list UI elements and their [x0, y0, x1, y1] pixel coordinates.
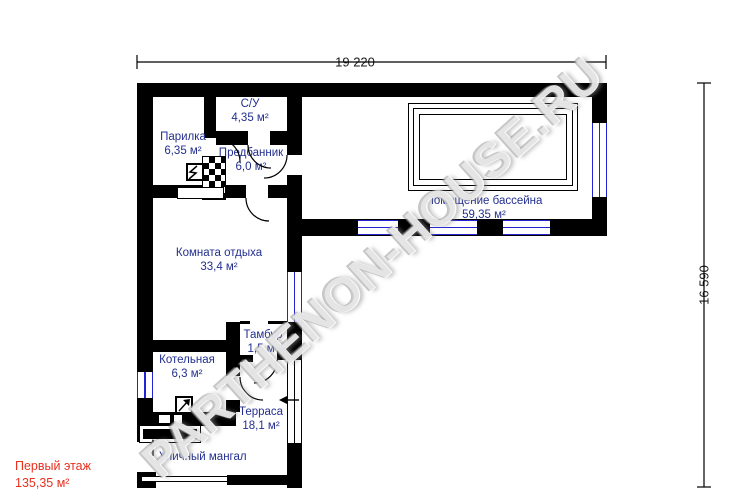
window-lounge-right [287, 272, 302, 322]
door-arc-tambour [254, 360, 277, 383]
floor-plan: Парилка 6,35 м² С/У 4,35 м² Предбанник 6… [0, 0, 750, 500]
room-area: 4,35 м² [231, 111, 268, 125]
room-label-su: С/У 4,35 м² [231, 97, 268, 125]
flue-mark [159, 415, 170, 423]
room-name: Терраса [239, 405, 283, 419]
room-area: 6,0 м² [219, 160, 283, 174]
floor-area: 135,35 м² [15, 475, 91, 492]
wall-top [137, 83, 607, 97]
wall-boiler-top [137, 340, 240, 352]
terrace-pillar-right [287, 443, 302, 488]
room-name: Котельная [159, 353, 215, 367]
terrace-edge-right [287, 360, 302, 443]
pool-basin [419, 114, 567, 180]
street-grill [140, 426, 200, 442]
plan-graphics [0, 0, 750, 500]
wall-pool-right-upper [592, 97, 607, 123]
wall-su-bottom-left [216, 131, 248, 145]
room-name: Тамбур [243, 328, 282, 342]
room-label-kotelnaya: Котельная 6,3 м² [159, 353, 215, 381]
room-area: 1,5 м² [243, 342, 282, 356]
grill-label: Уличный мангал [159, 451, 247, 463]
electric-heater-icon [186, 163, 204, 181]
wall-su-bottom-right [270, 131, 287, 145]
room-label-terrasa: Терраса 18,1 м² [239, 405, 283, 433]
window-pool-right [592, 123, 607, 197]
room-name: Помещение бассейна [426, 194, 543, 208]
room-label-predbannik: Предбанник 6,0 м² [219, 146, 283, 174]
floor-summary: Первый этаж 135,35 м² [15, 458, 91, 492]
door-arc-boiler [240, 377, 263, 400]
boiler-icon [175, 396, 193, 414]
room-name: С/У [231, 97, 268, 111]
dimension-height: 16 590 [696, 259, 713, 311]
flue-mark [174, 415, 182, 423]
room-name: Предбанник [219, 146, 283, 160]
wall-wing-right-1 [287, 97, 302, 155]
stove-bench [177, 187, 224, 199]
room-name: Парилка [160, 130, 206, 144]
room-area: 59,35 м² [426, 208, 543, 222]
wall-boiler-bottom [137, 412, 236, 426]
dimension-width: 19 220 [329, 54, 381, 71]
room-area: 6,3 м² [159, 367, 215, 381]
floor-title: Первый этаж [15, 458, 91, 475]
entry-arrow-head [279, 396, 287, 404]
room-area: 33,4 м² [176, 260, 262, 274]
room-area: 18,1 м² [239, 419, 283, 433]
terrace-step [227, 475, 289, 485]
window-boiler-left [137, 372, 153, 398]
window-pool-bottom-3 [503, 220, 550, 235]
door-arc-predbannik-lounge [246, 198, 269, 221]
room-area: 6,35 м² [160, 144, 206, 158]
room-label-tambur: Тамбур 1,5 м² [243, 328, 282, 356]
swimming-pool [408, 103, 578, 191]
window-pool-bottom-2 [430, 220, 477, 235]
wall-tambour-bottom [240, 355, 253, 362]
room-label-bassein: Помещение бассейна 59,35 м² [426, 194, 543, 222]
room-name: Комната отдыха [176, 246, 262, 260]
room-label-parilka: Парилка 6,35 м² [160, 130, 206, 158]
wall-boiler-right-lower [226, 400, 240, 412]
wall-tambour-top-left [240, 321, 250, 324]
room-label-otdyh: Комната отдыха 33,4 м² [176, 246, 262, 274]
wall-band-right [268, 185, 302, 198]
window-pool-bottom-1 [358, 220, 398, 235]
